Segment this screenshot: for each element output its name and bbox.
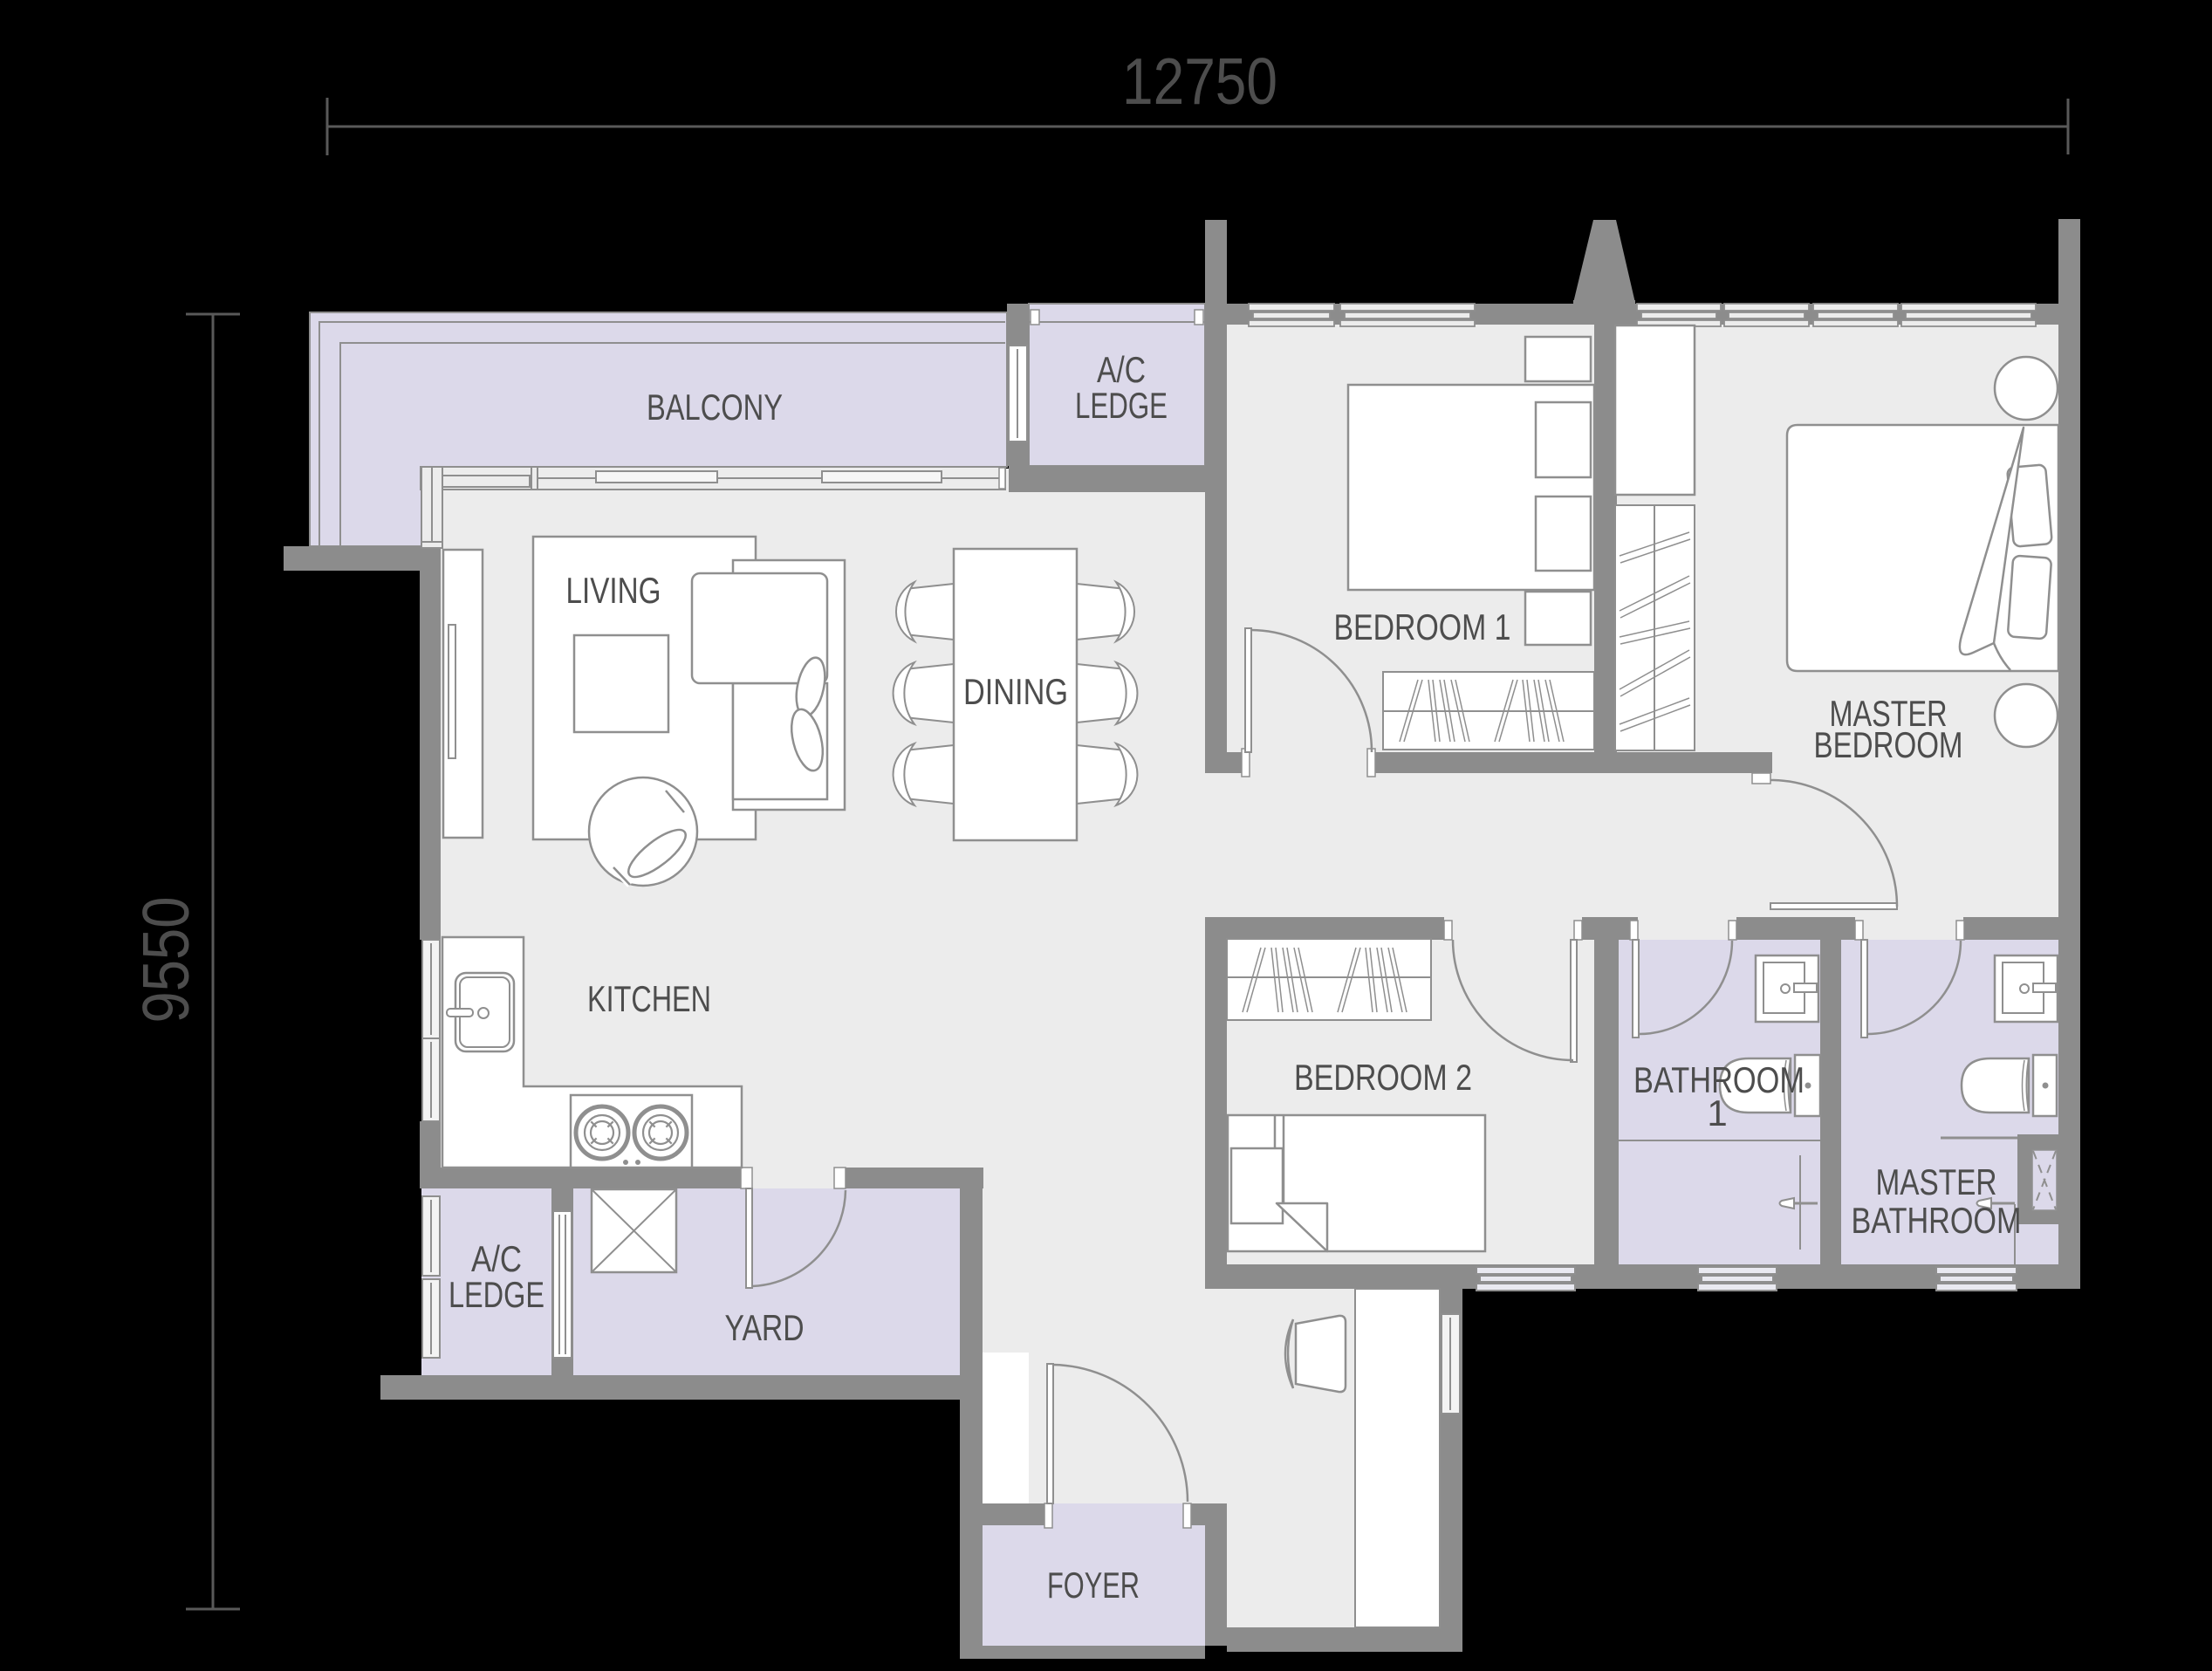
svg-text:YARD: YARD bbox=[725, 1307, 805, 1348]
svg-text:LIVING: LIVING bbox=[566, 570, 661, 611]
svg-text:A/C: A/C bbox=[1097, 349, 1146, 390]
svg-text:DINING: DINING bbox=[963, 671, 1068, 712]
svg-text:KITCHEN: KITCHEN bbox=[587, 978, 711, 1019]
svg-text:BATHROOM: BATHROOM bbox=[1852, 1200, 2022, 1241]
svg-text:1: 1 bbox=[1707, 1092, 1727, 1133]
svg-text:LEDGE: LEDGE bbox=[449, 1274, 544, 1315]
svg-text:BEDROOM 2: BEDROOM 2 bbox=[1294, 1057, 1472, 1098]
svg-text:BEDROOM 1: BEDROOM 1 bbox=[1334, 606, 1511, 647]
svg-text:FOYER: FOYER bbox=[1047, 1565, 1140, 1606]
svg-text:BEDROOM: BEDROOM bbox=[1814, 724, 1963, 765]
svg-text:9550: 9550 bbox=[129, 897, 202, 1024]
svg-text:BALCONY: BALCONY bbox=[647, 387, 783, 428]
svg-text:12750: 12750 bbox=[1122, 45, 1277, 118]
svg-text:A/C: A/C bbox=[471, 1238, 522, 1279]
svg-text:MASTER: MASTER bbox=[1876, 1161, 1997, 1202]
svg-text:LEDGE: LEDGE bbox=[1075, 385, 1168, 426]
